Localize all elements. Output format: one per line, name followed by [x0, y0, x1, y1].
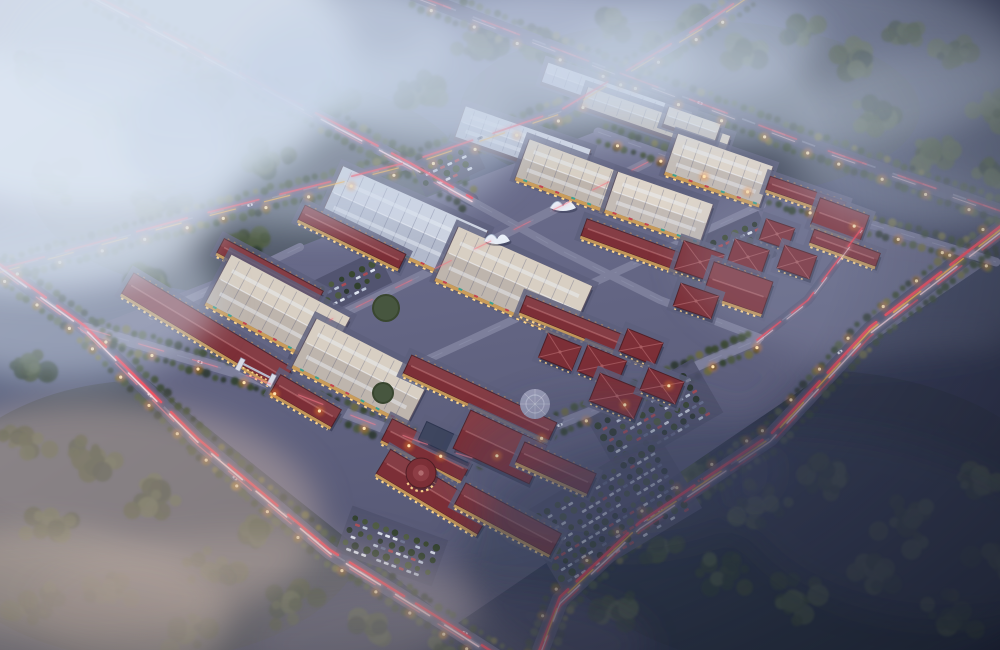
- industrial-park-aerial-rendering: [0, 0, 1000, 650]
- aerial-rendering-stage: [0, 0, 1000, 650]
- vignette-overlay: [0, 0, 1000, 650]
